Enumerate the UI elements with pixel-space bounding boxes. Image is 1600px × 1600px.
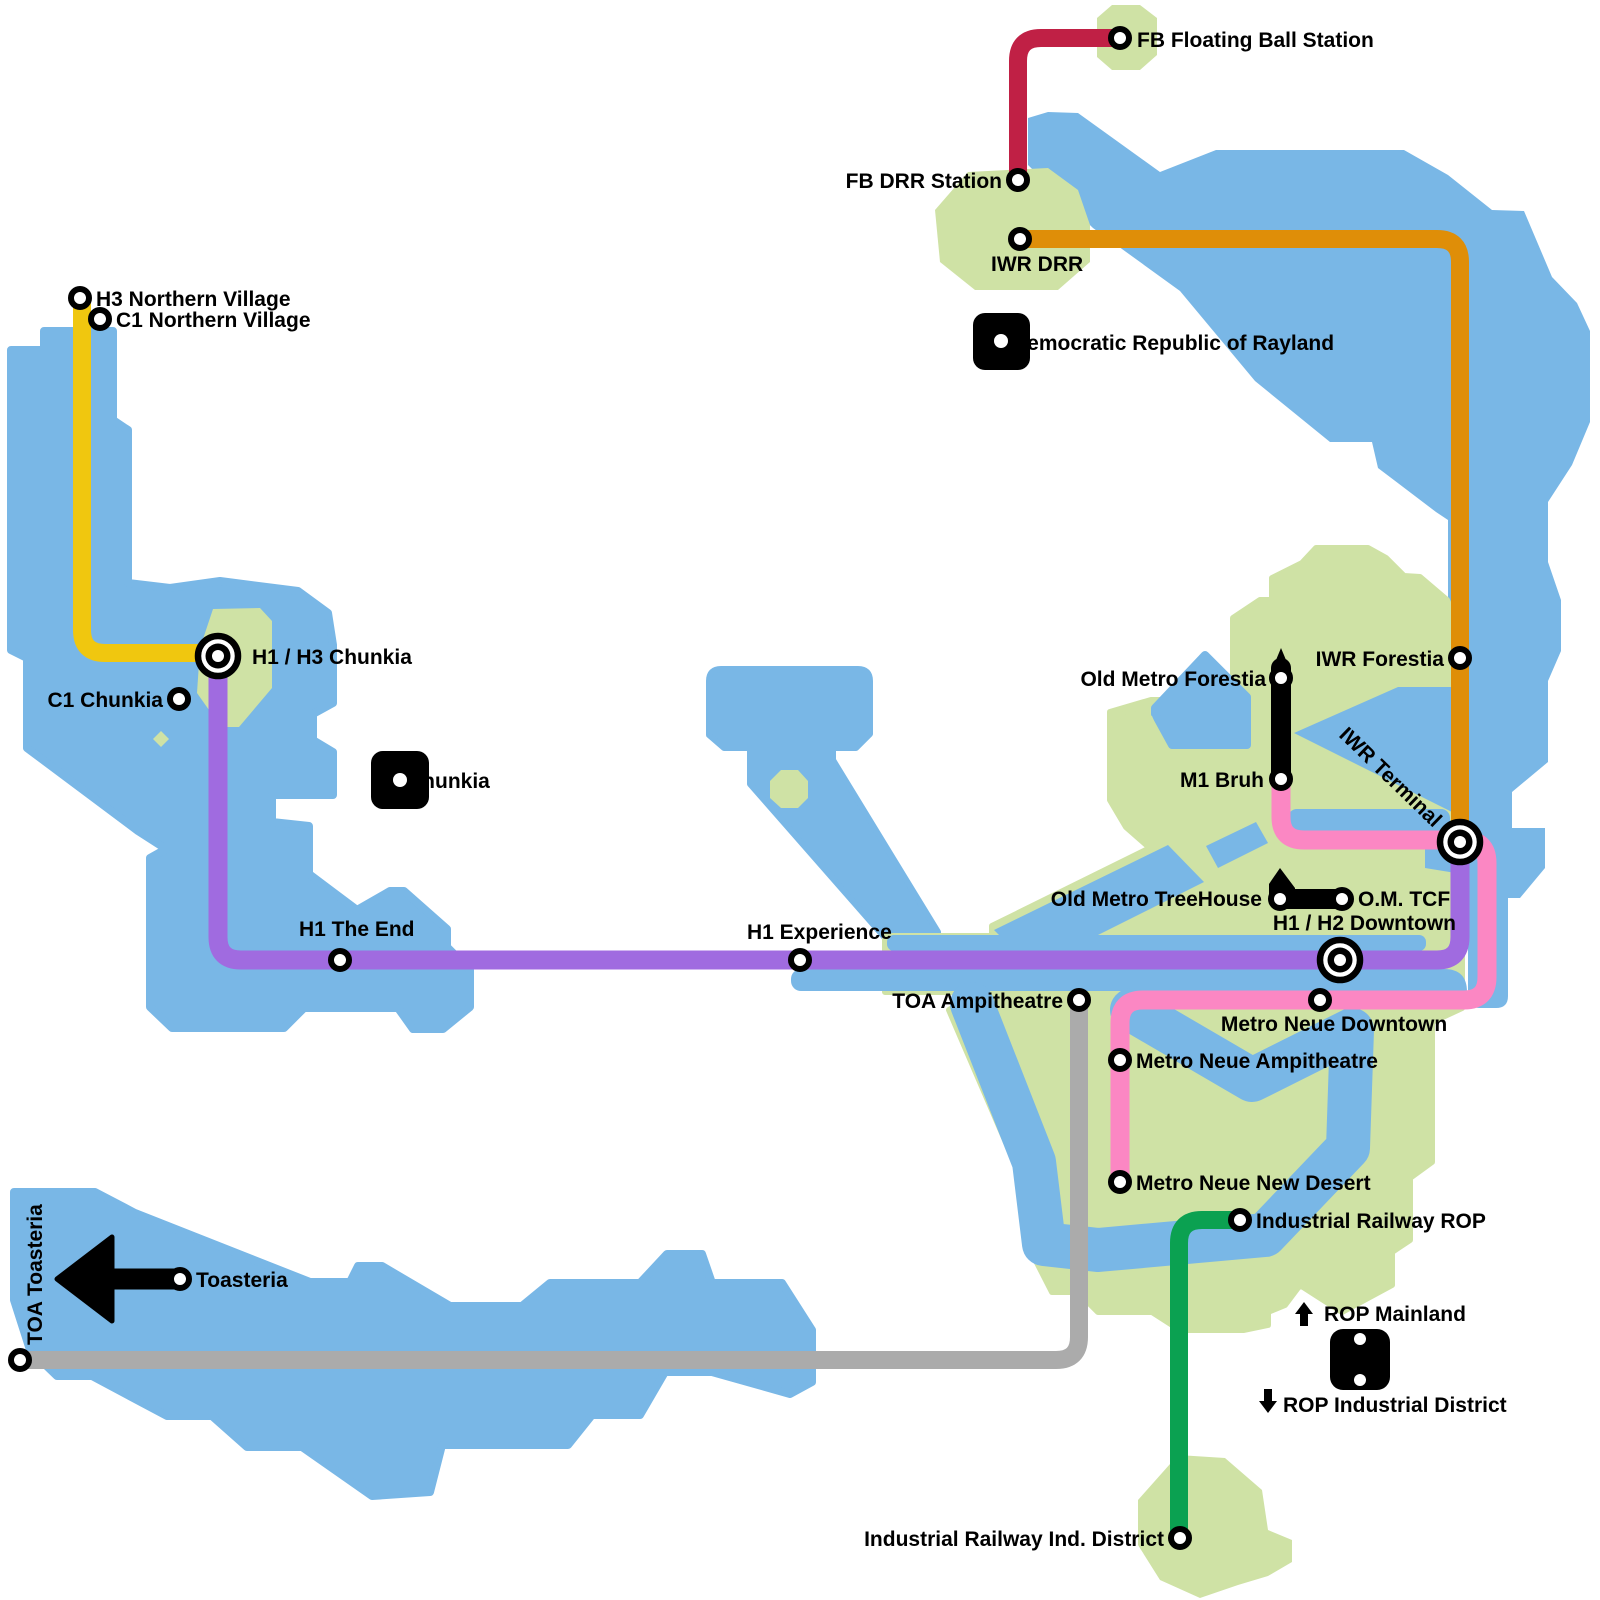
svg-text:Old Metro TreeHouse: Old Metro TreeHouse [1051,888,1262,911]
svg-text:H1 / H3 Chunkia: H1 / H3 Chunkia [252,646,412,669]
svg-text:H1 Experience: H1 Experience [747,921,892,944]
svg-text:TOA Ampitheatre: TOA Ampitheatre [892,990,1063,1013]
svg-text:IWR DRR: IWR DRR [991,253,1083,276]
svg-text:Old Metro Forestia: Old Metro Forestia [1080,668,1266,691]
svg-text:Industrial Railway Ind. Distri: Industrial Railway Ind. District [864,1528,1164,1551]
svg-text:Metro Neue New Desert: Metro Neue New Desert [1136,1172,1371,1195]
svg-text:FB Floating Ball Station: FB Floating Ball Station [1137,29,1374,52]
svg-text:M1 Bruh: M1 Bruh [1180,769,1264,792]
svg-text:ROP Industrial District: ROP Industrial District [1283,1394,1507,1417]
svg-text:H3 Northern Village: H3 Northern Village [96,288,291,311]
svg-text:H1 / H2 Downtown: H1 / H2 Downtown [1273,912,1456,935]
svg-text:C1 Chunkia: C1 Chunkia [47,689,163,712]
svg-text:FB DRR Station: FB DRR Station [846,170,1002,193]
svg-text:ROP Mainland: ROP Mainland [1324,1303,1466,1326]
svg-text:Industrial Railway ROP: Industrial Railway ROP [1256,1210,1486,1233]
svg-text:Toasteria: Toasteria [196,1269,288,1292]
svg-text:H1 The End: H1 The End [299,918,415,941]
svg-text:Democratic Republic of Rayland: Democratic Republic of Rayland [1012,332,1334,355]
svg-text:O.M. TCF: O.M. TCF [1358,888,1450,911]
svg-text:IWR Forestia: IWR Forestia [1316,648,1445,671]
svg-text:C1 Northern Village: C1 Northern Village [116,309,311,332]
svg-text:Metro Neue Ampitheatre: Metro Neue Ampitheatre [1136,1050,1378,1073]
svg-text:TOA Toasteria: TOA Toasteria [24,1204,47,1345]
svg-text:Metro Neue Downtown: Metro Neue Downtown [1221,1013,1447,1036]
